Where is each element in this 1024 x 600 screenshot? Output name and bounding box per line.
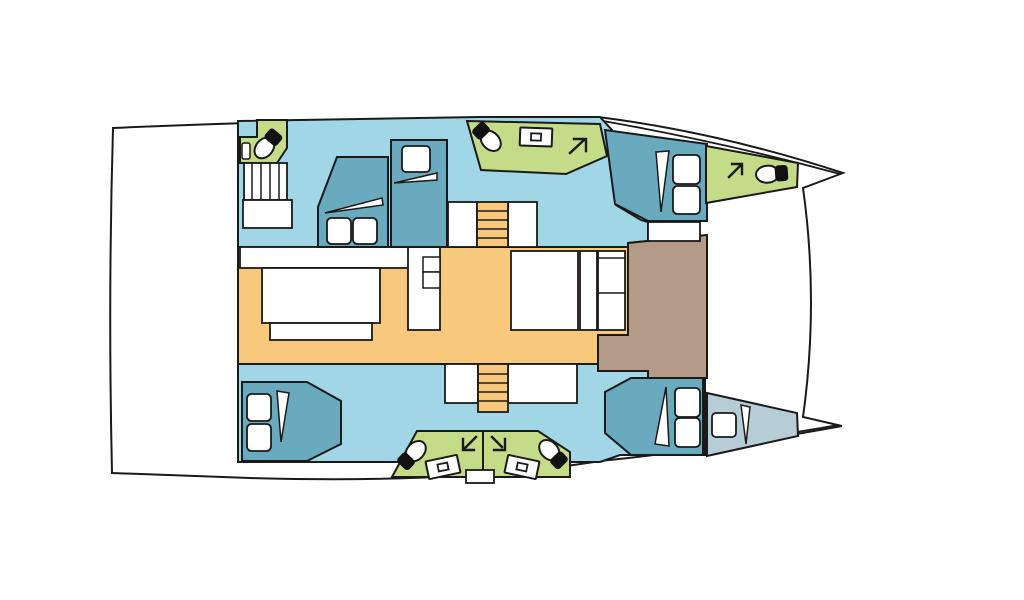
- nav-cabinet-2: [598, 251, 625, 330]
- galley-appliance-2: [423, 272, 440, 288]
- catamaran-floor-plan: [0, 0, 1024, 600]
- stair-landing-bottom-left: [445, 364, 478, 403]
- plan-root: [110, 117, 843, 483]
- sink-icon: [520, 127, 553, 146]
- pillow: [353, 218, 377, 244]
- nav-cabinet-1: [580, 251, 597, 330]
- berth-step: [648, 222, 700, 241]
- companionway-stairs-top: [477, 202, 508, 247]
- pillow: [673, 155, 700, 184]
- seat-cushion: [402, 146, 430, 172]
- aft-stairs-top-hull: [244, 163, 287, 200]
- saloon-bench: [270, 323, 372, 340]
- pillow: [327, 218, 351, 244]
- galley-appliance-1: [423, 257, 440, 272]
- stair-landing-top-left: [448, 202, 477, 247]
- locker-seat: [712, 413, 736, 437]
- pillow: [247, 424, 271, 451]
- galley-island: [511, 251, 578, 330]
- companionway-stairs-bottom: [478, 364, 508, 412]
- saloon-aft-counter: [240, 247, 412, 268]
- pillow: [247, 394, 271, 421]
- pillow: [673, 186, 700, 214]
- saloon-settee: [262, 268, 380, 323]
- stair-landing-top-right: [508, 202, 537, 247]
- stair-landing-aft: [243, 200, 292, 228]
- stair-landing-bottom-right: [508, 364, 577, 403]
- toilet-icon: [755, 164, 788, 183]
- head-door-step: [466, 470, 494, 483]
- pillow: [675, 388, 700, 417]
- pillow: [675, 418, 700, 447]
- floor-plan-svg: [0, 0, 1024, 600]
- sink-icon: [242, 143, 250, 159]
